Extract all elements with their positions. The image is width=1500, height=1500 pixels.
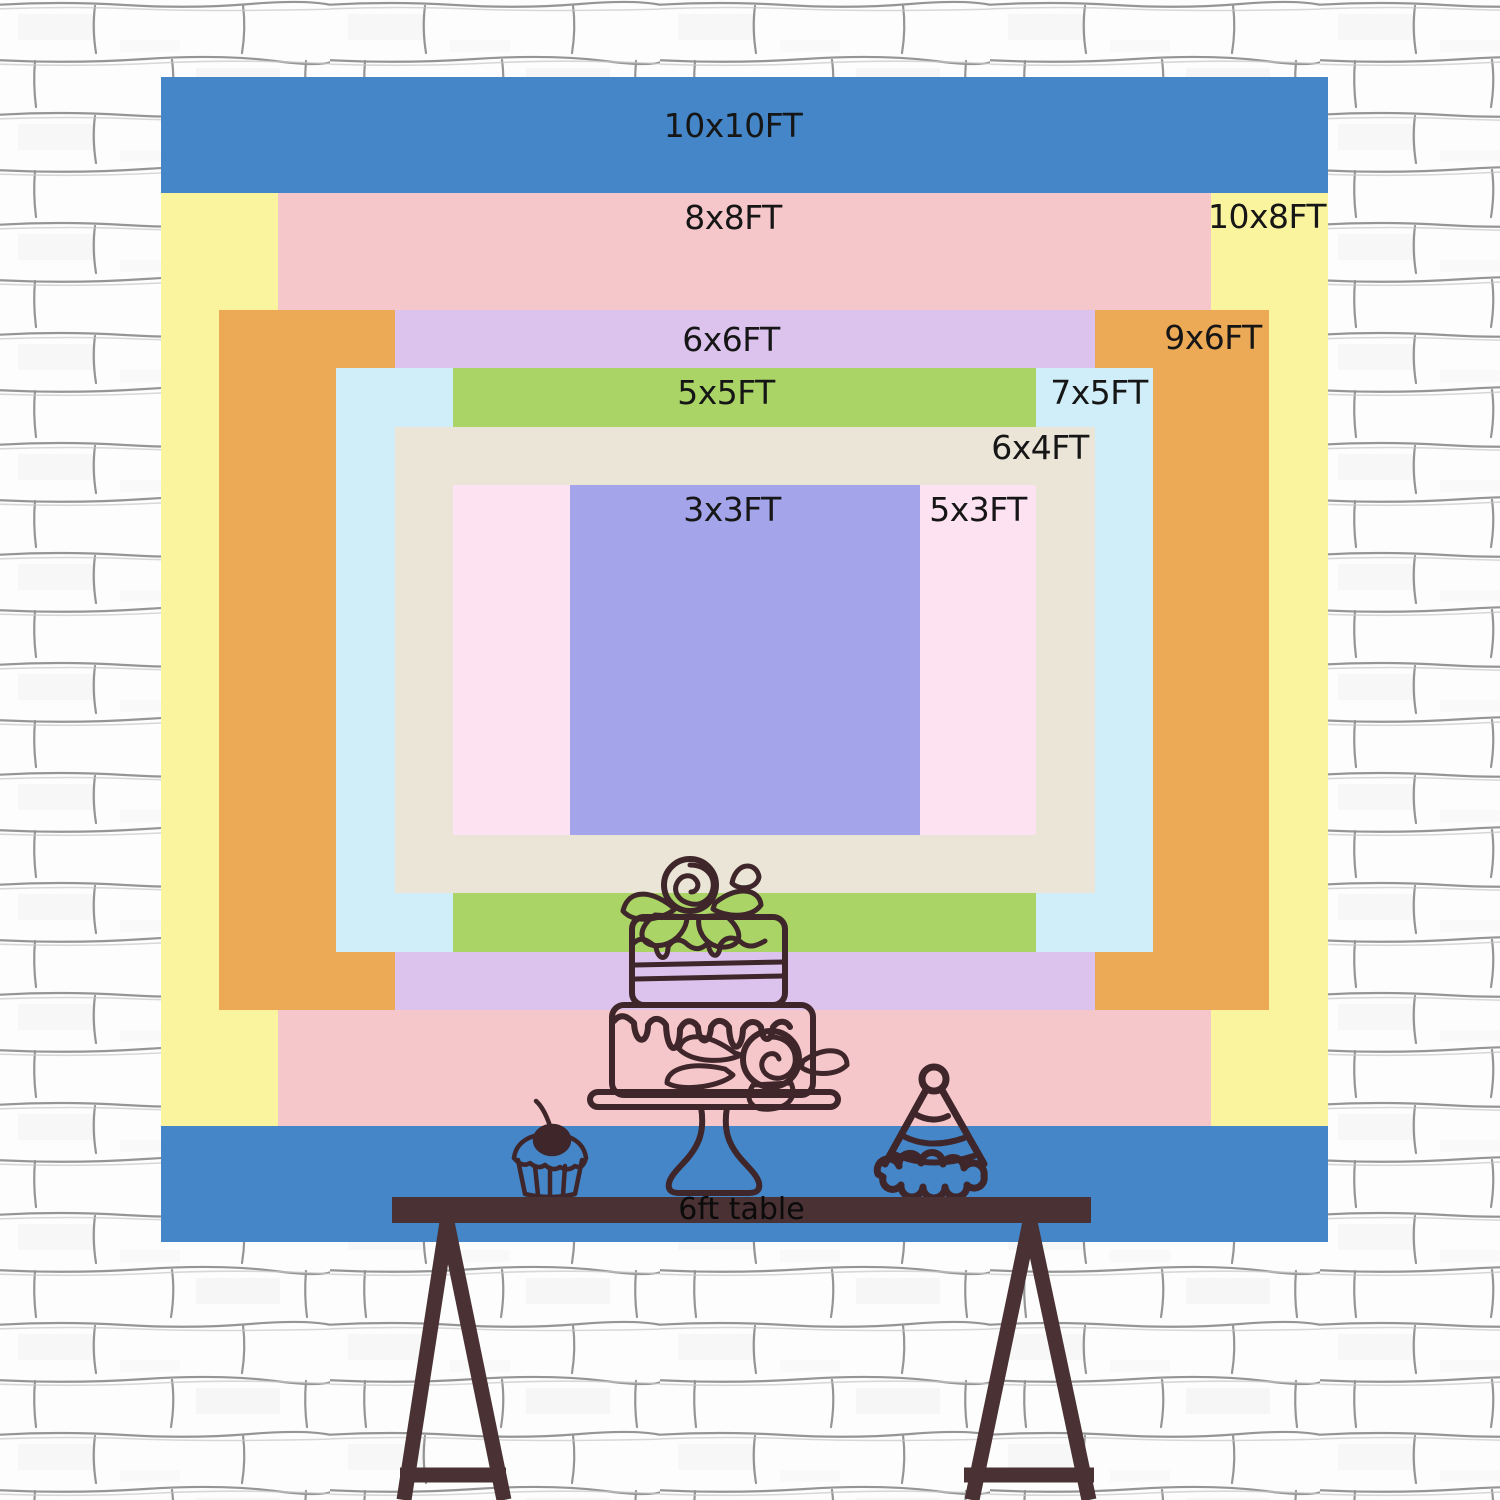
size-label-5x5ft: 5x5FT — [677, 375, 775, 411]
backdrop-size-chart: 10x10FT 8x8FT 10x8FT 6x6FT 9x6FT 5x5FT 7… — [0, 0, 1500, 1500]
party-hat-icon — [872, 1062, 1002, 1200]
table-trestle-legs — [360, 1222, 1120, 1500]
size-label-9x6ft: 9x6FT — [1164, 320, 1262, 356]
size-label-10x8ft: 10x8FT — [1208, 199, 1326, 235]
cupcake-icon — [502, 1096, 598, 1200]
table-label: 6ft table — [678, 1195, 804, 1225]
size-label-6x6ft: 6x6FT — [682, 322, 780, 358]
cake-icon — [575, 853, 855, 1203]
size-label-6x4ft: 6x4FT — [991, 430, 1089, 466]
size-label-10x10ft: 10x10FT — [664, 108, 803, 144]
size-rect-3x3ft — [570, 485, 920, 835]
table-top: 6ft table — [392, 1197, 1091, 1223]
size-label-3x3ft: 3x3FT — [683, 492, 781, 528]
size-label-7x5ft: 7x5FT — [1050, 375, 1148, 411]
size-label-5x3ft: 5x3FT — [929, 492, 1027, 528]
size-label-8x8ft: 8x8FT — [684, 200, 782, 236]
